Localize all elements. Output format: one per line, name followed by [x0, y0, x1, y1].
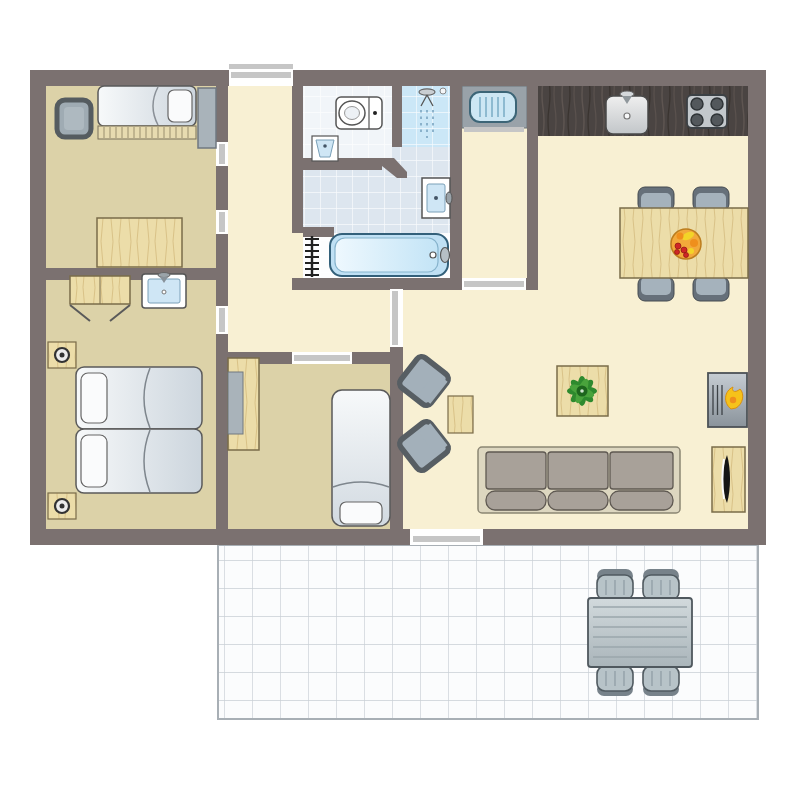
bedroom3-door: [294, 355, 350, 361]
hob: [687, 95, 727, 128]
front-door: [231, 72, 291, 78]
single-bed-1: [98, 86, 196, 139]
garden-chair: [643, 569, 679, 600]
fruit-bowl: [671, 229, 701, 259]
double-bed: [76, 367, 202, 493]
nightstand-bottom: [48, 493, 76, 519]
garden-chair: [597, 569, 633, 600]
bedroom2-door: [219, 308, 225, 332]
bathroom-washbasin: [422, 178, 452, 218]
garden-chair: [643, 666, 679, 696]
wardrobe-bedroom1: [198, 88, 216, 148]
plant: [567, 376, 597, 406]
sofa-cushions: [486, 452, 673, 510]
closet-top-slider: [464, 127, 524, 132]
kitchen-sink: [606, 91, 648, 134]
hall-living-door: [392, 291, 398, 345]
bedroom1-door: [219, 144, 225, 164]
tv-cabinet: [712, 447, 745, 512]
sofa: [478, 447, 680, 513]
desk-bedroom1: [97, 218, 182, 267]
boiler: [470, 92, 516, 122]
closet-door: [464, 281, 524, 287]
bedroom1-door-2: [219, 212, 225, 232]
floor-plan-drawing: [0, 0, 800, 800]
fireplace: [708, 373, 747, 427]
nightstand-top: [48, 342, 76, 368]
garden-table: [588, 598, 692, 667]
dining-chair: [638, 277, 674, 301]
corner-basin: [312, 136, 338, 161]
terrace: [218, 545, 758, 719]
side-table: [448, 396, 473, 433]
toilet: [336, 97, 382, 129]
garden-chair: [597, 666, 633, 696]
bathtub: [330, 234, 450, 276]
terrace-sliding-door: [413, 536, 480, 542]
bedroom2-washbasin: [142, 273, 186, 309]
dining-chair: [693, 277, 729, 301]
desk-chair-bedroom3: [228, 372, 243, 434]
entrance-step: [229, 64, 293, 69]
armchair-bedroom1: [57, 100, 91, 137]
single-bed-3: [332, 390, 390, 526]
coffee-table-with-plant: [557, 366, 608, 416]
floor-plan-page: [0, 0, 800, 800]
